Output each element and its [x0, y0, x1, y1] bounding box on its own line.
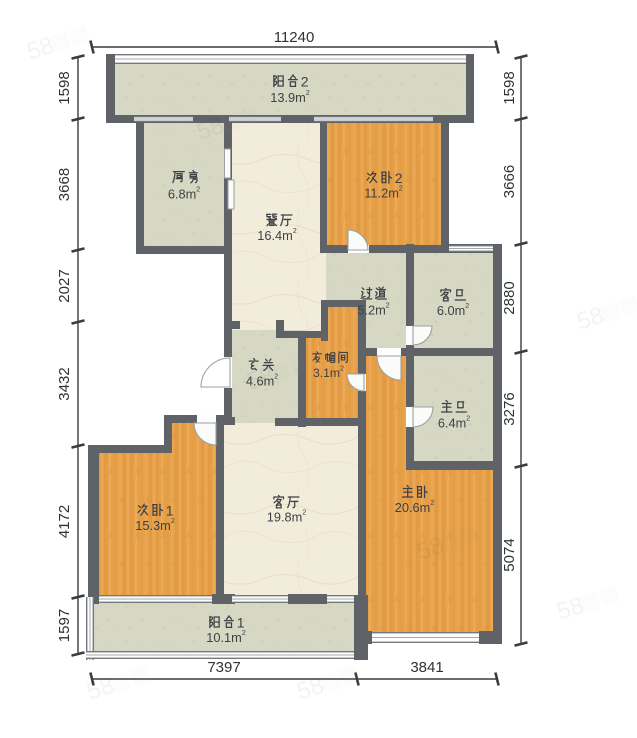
svg-text:3276: 3276	[501, 392, 518, 425]
svg-text:4172: 4172	[56, 505, 73, 538]
svg-text:6.8m2: 6.8m2	[168, 186, 200, 202]
svg-text:3841: 3841	[410, 659, 443, 676]
svg-text:13.9m2: 13.9m2	[270, 90, 310, 106]
svg-text:2: 2	[395, 170, 403, 186]
svg-text:5.2m2: 5.2m2	[357, 302, 389, 318]
svg-text:2027: 2027	[56, 269, 73, 302]
svg-text:11.2m2: 11.2m2	[364, 185, 403, 201]
svg-text:1597: 1597	[56, 609, 73, 642]
svg-text:6.0m2: 6.0m2	[437, 303, 469, 319]
svg-text:20.6m2: 20.6m2	[395, 500, 435, 516]
svg-text:19.8m2: 19.8m2	[267, 509, 307, 525]
svg-text:5074: 5074	[501, 538, 518, 571]
svg-text:3.1m2: 3.1m2	[313, 365, 344, 380]
svg-text:3666: 3666	[501, 165, 518, 198]
svg-text:10.1m2: 10.1m2	[206, 630, 246, 646]
svg-text:1598: 1598	[501, 71, 518, 104]
svg-text:6.4m2: 6.4m2	[438, 415, 470, 431]
svg-text:3432: 3432	[56, 367, 73, 400]
svg-text:2880: 2880	[501, 281, 518, 314]
svg-text:1: 1	[237, 615, 245, 631]
svg-text:16.4m2: 16.4m2	[257, 228, 297, 244]
svg-text:1598: 1598	[56, 71, 73, 104]
svg-text:15.3m2: 15.3m2	[135, 518, 175, 534]
svg-text:7397: 7397	[207, 659, 240, 676]
svg-text:1: 1	[166, 503, 174, 519]
svg-text:2: 2	[301, 74, 309, 90]
svg-text:3668: 3668	[56, 168, 73, 201]
svg-text:11240: 11240	[274, 29, 315, 46]
